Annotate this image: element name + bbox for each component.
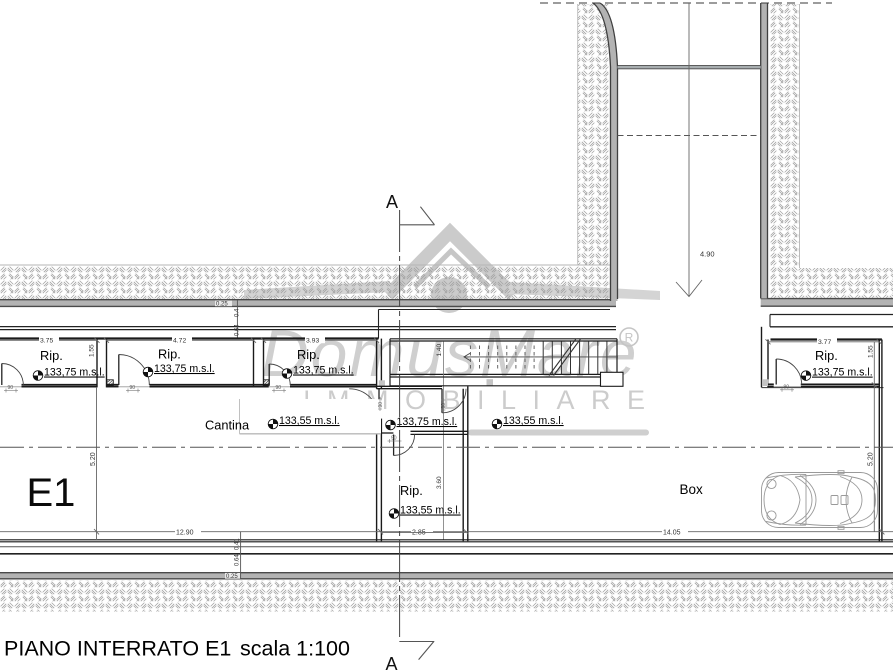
svg-text:0.25: 0.25 <box>216 301 228 307</box>
svg-text:133,75 m.s.l.: 133,75 m.s.l. <box>154 363 215 375</box>
svg-text:0.64: 0.64 <box>235 324 241 336</box>
svg-text:90: 90 <box>441 403 447 409</box>
svg-text:3.77: 3.77 <box>818 339 831 346</box>
svg-text:3.93: 3.93 <box>306 337 319 344</box>
svg-text:1.55: 1.55 <box>868 345 875 358</box>
svg-text:133,55 m.s.l.: 133,55 m.s.l. <box>503 415 564 427</box>
svg-text:0.41: 0.41 <box>234 538 240 550</box>
svg-text:3.60: 3.60 <box>436 476 443 489</box>
svg-text:14.05: 14.05 <box>663 529 681 536</box>
svg-text:90: 90 <box>378 402 384 408</box>
svg-text:4.90: 4.90 <box>700 250 715 259</box>
svg-text:Rip.: Rip. <box>815 348 838 363</box>
svg-text:133,75 m.s.l.: 133,75 m.s.l. <box>812 367 873 379</box>
svg-text:0.25: 0.25 <box>226 574 238 580</box>
svg-text:4.72: 4.72 <box>173 337 186 344</box>
svg-text:5.20: 5.20 <box>90 452 97 466</box>
svg-text:3.75: 3.75 <box>40 337 53 344</box>
svg-text:Rip.: Rip. <box>40 348 63 363</box>
svg-text:Cantina: Cantina <box>205 417 250 432</box>
svg-text:Rip.: Rip. <box>158 347 181 362</box>
svg-text:5.20: 5.20 <box>868 452 875 466</box>
svg-text:90: 90 <box>276 385 282 391</box>
svg-text:A: A <box>386 654 398 670</box>
svg-text:0.64: 0.64 <box>234 554 240 566</box>
svg-text:PIANO INTERRATO E1: PIANO INTERRATO E1 <box>4 637 231 661</box>
svg-text:0.4: 0.4 <box>235 308 241 317</box>
svg-text:1.40: 1.40 <box>436 343 443 356</box>
svg-text:R: R <box>625 331 634 345</box>
svg-text:Rip.: Rip. <box>400 483 423 498</box>
svg-text:90: 90 <box>391 436 397 442</box>
svg-text:133,75 m.s.l.: 133,75 m.s.l. <box>397 416 458 428</box>
svg-text:133,55 m.s.l.: 133,55 m.s.l. <box>279 415 340 427</box>
svg-text:Box: Box <box>680 482 704 497</box>
svg-text:1.55: 1.55 <box>89 344 96 357</box>
svg-text:90: 90 <box>8 385 14 391</box>
svg-text:12.90: 12.90 <box>176 529 194 536</box>
svg-text:133,55 m.s.l.: 133,55 m.s.l. <box>400 505 461 517</box>
svg-text:133,75 m.s.l.: 133,75 m.s.l. <box>44 367 105 379</box>
svg-text:E1: E1 <box>27 471 76 515</box>
svg-text:A: A <box>386 192 398 212</box>
svg-text:scala 1:100: scala 1:100 <box>240 637 350 661</box>
svg-text:2.85: 2.85 <box>412 529 426 536</box>
svg-text:90: 90 <box>784 384 790 390</box>
svg-text:Rip.: Rip. <box>297 347 320 362</box>
svg-text:90: 90 <box>130 385 136 391</box>
svg-text:133,75 m.s.l.: 133,75 m.s.l. <box>293 365 354 377</box>
